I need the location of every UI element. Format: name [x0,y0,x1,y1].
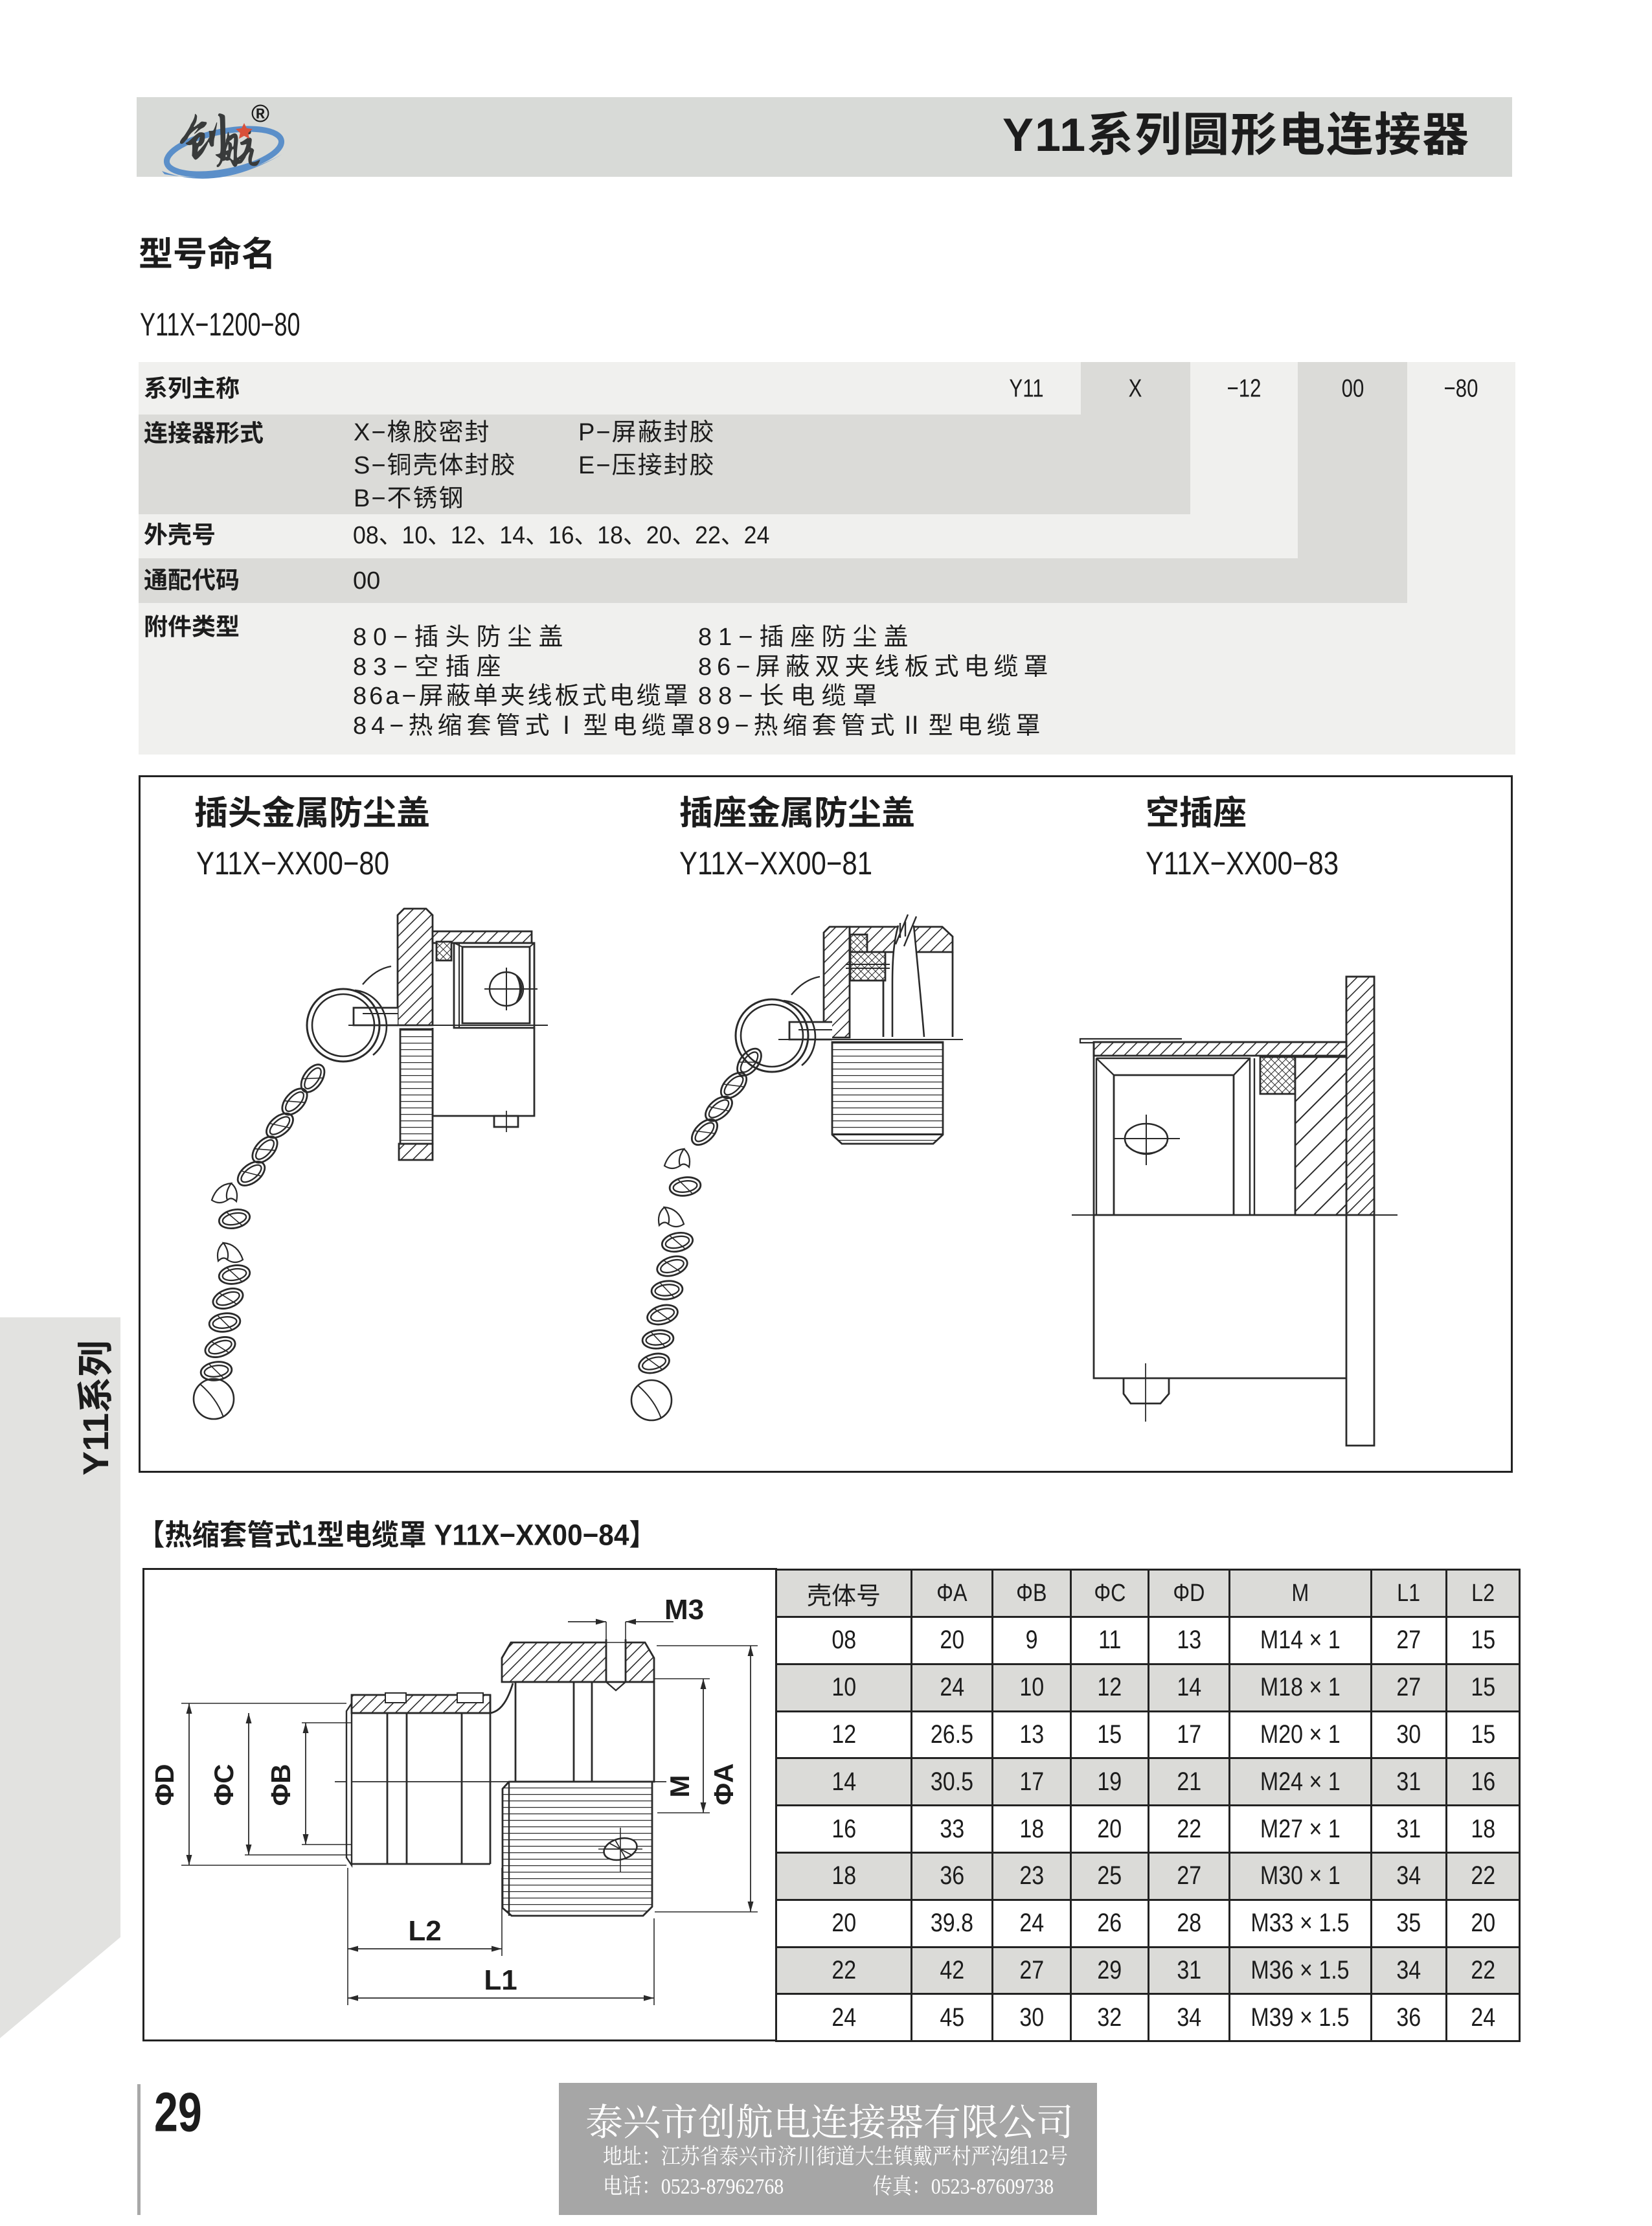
svg-text:L1: L1 [484,1964,517,1996]
svg-text:M: M [664,1775,695,1798]
svg-text:ΦD: ΦD [155,1764,179,1806]
svg-text:ΦB: ΦB [266,1764,296,1806]
svg-text:M3: M3 [664,1594,704,1626]
svg-text:ΦA: ΦA [708,1764,739,1806]
svg-text:L2: L2 [408,1915,441,1947]
svg-text:®: ® [251,100,269,128]
svg-text:ΦC: ΦC [209,1764,239,1806]
